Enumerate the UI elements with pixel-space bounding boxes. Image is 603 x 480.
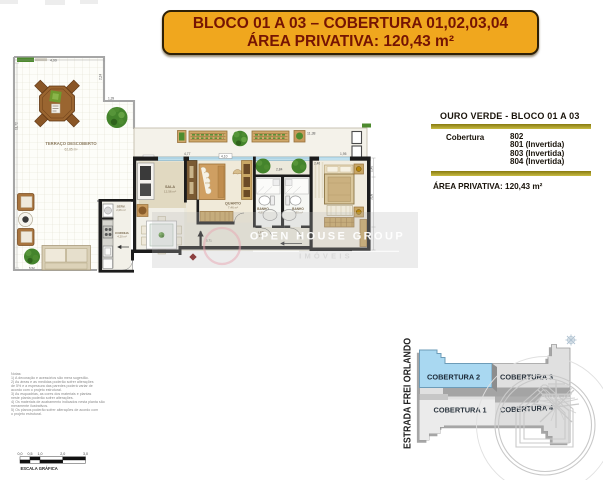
svg-text:OPEN HOUSE GROUP: OPEN HOUSE GROUP — [250, 231, 405, 243]
svg-text:TERRAÇO DESCOBERTO: TERRAÇO DESCOBERTO — [45, 141, 97, 146]
svg-text:7,46 m²: 7,46 m² — [228, 206, 238, 210]
svg-text:2,84: 2,84 — [276, 168, 283, 172]
svg-text:COBERTURA 3: COBERTURA 3 — [500, 373, 553, 382]
svg-text:2,06 m²: 2,06 m² — [116, 208, 126, 212]
svg-text:1,40: 1,40 — [370, 166, 374, 172]
svg-text:4,10: 4,10 — [221, 155, 228, 159]
svg-text:4,20 m²: 4,20 m² — [117, 235, 127, 239]
svg-text:2,40: 2,40 — [314, 162, 320, 166]
svg-text:62,85 m²: 62,85 m² — [64, 148, 78, 152]
svg-text:4,99: 4,99 — [50, 59, 57, 63]
svg-text:5,52: 5,52 — [29, 266, 35, 270]
svg-text:2,0: 2,0 — [60, 452, 65, 456]
svg-text:2,24: 2,24 — [99, 74, 103, 80]
svg-text:0,0: 0,0 — [18, 452, 23, 456]
svg-text:11,38: 11,38 — [307, 132, 316, 136]
svg-text:3,08: 3,08 — [370, 194, 374, 200]
svg-text:ESCALA GRÁFICA: ESCALA GRÁFICA — [21, 466, 58, 471]
svg-text:IMÓVEIS: IMÓVEIS — [299, 252, 353, 261]
svg-text:ESTRADA FREI ORLANDO: ESTRADA FREI ORLANDO — [403, 338, 414, 449]
svg-text:12,56 m²: 12,56 m² — [164, 190, 176, 194]
svg-text:COBERTURA 2: COBERTURA 2 — [427, 373, 480, 382]
svg-text:11,72: 11,72 — [15, 122, 19, 130]
svg-text:3,0: 3,0 — [83, 452, 88, 456]
svg-text:1,0: 1,0 — [38, 452, 43, 456]
svg-text:4,77: 4,77 — [184, 152, 191, 156]
svg-text:0,5: 0,5 — [28, 452, 33, 456]
svg-text:1,95: 1,95 — [340, 152, 347, 156]
svg-text:SALA: SALA — [165, 185, 175, 189]
svg-text:1,39: 1,39 — [108, 96, 114, 100]
